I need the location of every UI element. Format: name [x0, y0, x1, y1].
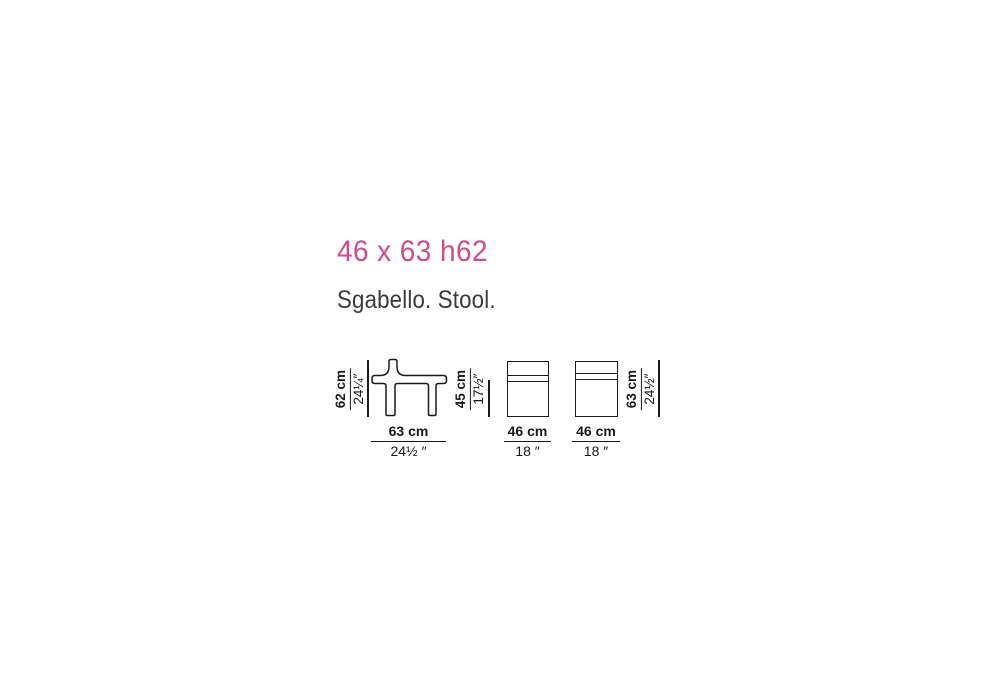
- height-dimension-label-side-view: 63 cm 24½″: [625, 360, 657, 418]
- dimension-metric-text: 63 cm: [625, 368, 642, 410]
- stool-side-profile-drawing: [371, 358, 448, 418]
- seat-top-line: [576, 373, 617, 374]
- height-dimension-label-side-profile: 62 cm 24¼″: [334, 360, 366, 418]
- seat-height-extent-line: [488, 380, 490, 417]
- dimension-metric-text: 62 cm: [334, 368, 351, 410]
- dimension-imperial-text: 24½″: [642, 374, 658, 405]
- dimension-metric-text: 45 cm: [454, 368, 471, 410]
- seat-bottom-line: [576, 379, 617, 380]
- product-dimension-sheet: 46 x 63 h62 Sgabello. Stool. 62 cm 24¼″ …: [0, 0, 1000, 700]
- stool-front-view-drawing: [507, 361, 549, 417]
- dimension-imperial-text: 18 ″: [572, 442, 620, 459]
- dimension-imperial-text: 24½ ″: [371, 442, 446, 459]
- product-subtitle: Sgabello. Stool.: [337, 286, 496, 315]
- dimension-metric-text: 63 cm: [371, 424, 446, 442]
- dimension-metric-text: 46 cm: [572, 424, 620, 442]
- page-title: 46 x 63 h62: [337, 235, 488, 269]
- seat-top-line: [508, 375, 548, 376]
- width-dimension-label-side-view: 46 cm 18 ″: [572, 424, 620, 460]
- width-dimension-label-side-profile: 63 cm 24½ ″: [371, 424, 446, 460]
- height-extent-line: [367, 360, 369, 417]
- width-dimension-label-front-view: 46 cm 18 ″: [504, 424, 551, 460]
- seat-bottom-line: [508, 381, 548, 382]
- seat-height-dimension-label-front-view: 45 cm 17½″: [454, 360, 486, 418]
- dimension-metric-text: 46 cm: [504, 424, 551, 442]
- dimension-imperial-text: 24¼″: [351, 374, 367, 405]
- height-extent-line: [658, 360, 660, 417]
- stool-side-view-drawing: [575, 361, 618, 417]
- stool-profile-outline: [371, 358, 448, 418]
- dimension-imperial-text: 17½″: [471, 374, 487, 405]
- dimension-imperial-text: 18 ″: [504, 442, 551, 459]
